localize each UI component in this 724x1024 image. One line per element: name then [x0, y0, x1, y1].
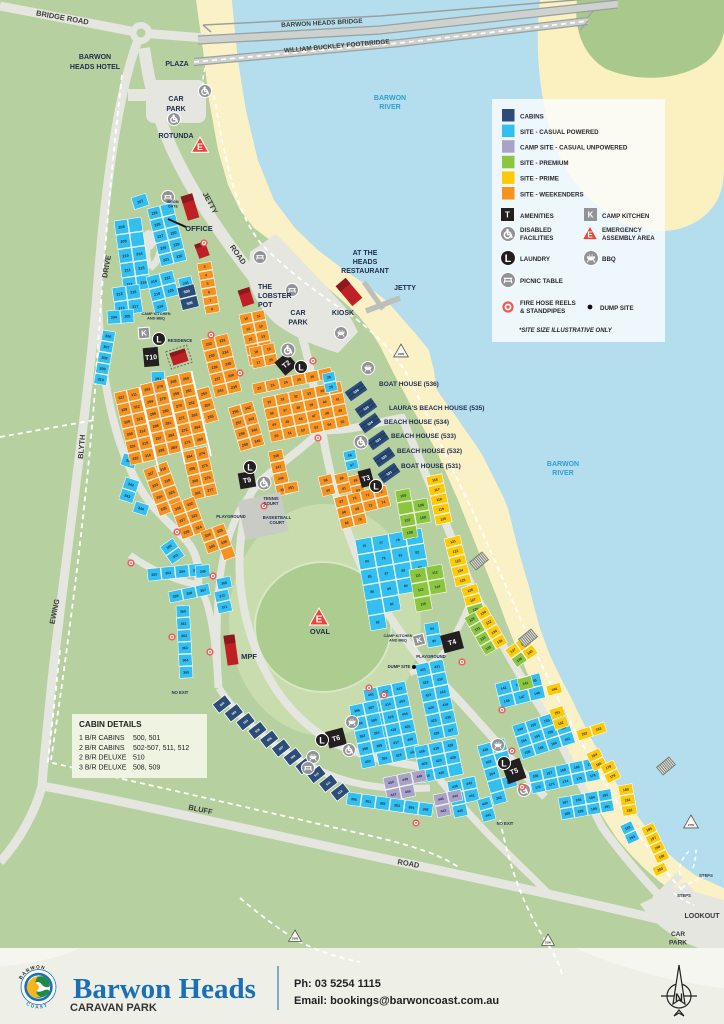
svg-text:L: L — [247, 463, 253, 473]
svg-text:ROTUNDA: ROTUNDA — [159, 133, 194, 140]
svg-text:208: 208 — [118, 225, 125, 230]
svg-text:DUMP SITE: DUMP SITE — [388, 664, 411, 669]
svg-text:AMENITIES: AMENITIES — [520, 213, 554, 220]
svg-text:81: 81 — [398, 553, 403, 558]
svg-text:E: E — [587, 231, 593, 240]
svg-text:95: 95 — [432, 639, 437, 644]
svg-text:354: 354 — [179, 569, 185, 574]
svg-text:MPF: MPF — [241, 652, 257, 661]
svg-text:BARWON: BARWON — [547, 461, 579, 468]
svg-text:363: 363 — [182, 646, 188, 650]
svg-text:215: 215 — [138, 266, 145, 271]
svg-text:PLAYGROUND: PLAYGROUND — [416, 654, 445, 659]
svg-text:BOAT HOUSE (531): BOAT HOUSE (531) — [401, 463, 461, 470]
svg-text:500, 501: 500, 501 — [133, 735, 160, 742]
svg-text:E: E — [316, 615, 323, 626]
svg-text:CAR: CAR — [671, 931, 685, 938]
svg-text:216: 216 — [140, 280, 147, 285]
svg-text:352: 352 — [151, 572, 157, 577]
svg-text:CAR: CAR — [290, 310, 305, 317]
svg-text:510: 510 — [133, 755, 145, 762]
svg-text:382: 382 — [379, 801, 385, 806]
svg-text:COURT: COURT — [264, 501, 279, 506]
svg-text:2 B/R CABINS: 2 B/R CABINS — [79, 745, 125, 752]
svg-text:212: 212 — [116, 292, 123, 297]
svg-text:OVAL: OVAL — [310, 627, 331, 636]
svg-text:362: 362 — [181, 634, 187, 638]
svg-text:JETTY: JETTY — [394, 285, 416, 292]
svg-text:L: L — [156, 335, 162, 345]
svg-text:PARK: PARK — [288, 320, 307, 327]
svg-text:AND BBQ: AND BBQ — [389, 639, 407, 643]
svg-text:89: 89 — [387, 587, 392, 592]
svg-text:Ph: 03 5254 1115: Ph: 03 5254 1115 — [294, 978, 381, 990]
svg-text:87: 87 — [384, 571, 389, 576]
svg-text:94: 94 — [430, 627, 435, 632]
svg-text:E: E — [197, 142, 203, 152]
svg-text:217: 217 — [132, 304, 139, 309]
svg-text:2 B/R DELUXE: 2 B/R DELUXE — [79, 755, 127, 762]
svg-text:AND BBQ: AND BBQ — [147, 317, 165, 321]
svg-text:508, 509: 508, 509 — [133, 764, 160, 771]
svg-text:POT: POT — [258, 302, 273, 309]
svg-text:BARWON: BARWON — [374, 95, 406, 102]
svg-text:BOOM: BOOM — [167, 200, 178, 204]
svg-text:L: L — [501, 759, 507, 769]
svg-text:STEPS: STEPS — [699, 873, 713, 878]
svg-text:KIOSK: KIOSK — [332, 310, 354, 317]
svg-text:SITE - CASUAL POWERED: SITE - CASUAL POWERED — [520, 129, 599, 136]
svg-text:L: L — [319, 736, 325, 746]
svg-text:82: 82 — [415, 550, 420, 555]
svg-text:PARK: PARK — [166, 106, 185, 113]
svg-text:FACILITIES: FACILITIES — [520, 235, 553, 242]
svg-text:3 B/R DELUXE: 3 B/R DELUXE — [79, 764, 127, 771]
svg-text:CABIN DETAILS: CABIN DETAILS — [79, 720, 142, 729]
svg-text:T10: T10 — [145, 354, 158, 362]
svg-text:L: L — [373, 482, 379, 492]
svg-text:PICNIC TABLE: PICNIC TABLE — [520, 278, 563, 285]
svg-text:L: L — [298, 363, 304, 373]
svg-text:PLAYGROUND: PLAYGROUND — [216, 514, 245, 519]
svg-text:STEPS: STEPS — [677, 893, 691, 898]
svg-text:211: 211 — [124, 268, 130, 273]
svg-text:BOAT HOUSE (536): BOAT HOUSE (536) — [379, 381, 439, 388]
svg-text:CARAVAN PARK: CARAVAN PARK — [70, 1002, 157, 1014]
svg-text:NO EXIT: NO EXIT — [172, 690, 189, 695]
svg-text:COURT: COURT — [270, 520, 285, 525]
svg-text:502-507, 511, 512: 502-507, 511, 512 — [133, 745, 189, 752]
svg-text:384: 384 — [408, 805, 414, 810]
svg-text:86: 86 — [370, 590, 375, 595]
svg-text:79: 79 — [396, 538, 401, 543]
svg-text:RIVER: RIVER — [379, 104, 400, 111]
svg-text:380: 380 — [351, 797, 357, 802]
svg-text:K: K — [588, 211, 594, 220]
svg-text:AT THE: AT THE — [353, 250, 378, 257]
svg-text:25W: 25W — [545, 941, 551, 945]
svg-text:BEACH HOUSE (532): BEACH HOUSE (532) — [397, 448, 462, 455]
svg-text:GATE: GATE — [168, 205, 178, 209]
svg-text:92: 92 — [376, 620, 381, 625]
svg-text:BBQ: BBQ — [602, 256, 616, 263]
svg-text:383: 383 — [394, 803, 400, 808]
svg-text:EMERGENCY: EMERGENCY — [602, 227, 643, 234]
svg-text:90: 90 — [404, 584, 409, 589]
svg-text:HEADS: HEADS — [353, 259, 378, 266]
svg-text:209: 209 — [120, 239, 127, 244]
svg-text:381: 381 — [365, 799, 371, 804]
svg-text:365: 365 — [183, 670, 189, 674]
svg-text:BEACH HOUSE (534): BEACH HOUSE (534) — [384, 419, 449, 426]
svg-text:85: 85 — [367, 574, 372, 579]
svg-text:& STANDPIPES: & STANDPIPES — [520, 308, 565, 315]
svg-text:20W: 20W — [398, 352, 404, 356]
svg-text:SITE - PRIME: SITE - PRIME — [520, 176, 559, 183]
svg-text:L: L — [505, 253, 512, 265]
svg-text:LAUNDRY: LAUNDRY — [520, 256, 551, 263]
svg-text:77: 77 — [379, 541, 384, 546]
svg-text:LAURA'S BEACH HOUSE (535): LAURA'S BEACH HOUSE (535) — [389, 405, 484, 412]
svg-text:360: 360 — [180, 609, 186, 613]
svg-text:364: 364 — [182, 658, 188, 662]
svg-text:RESIDENCE: RESIDENCE — [168, 338, 193, 343]
svg-text:OFFICE: OFFICE — [185, 224, 213, 233]
svg-text:NO EXIT: NO EXIT — [497, 821, 514, 826]
svg-text:Email: bookings@barwoncoast.co: Email: bookings@barwoncoast.com.au — [294, 995, 499, 1007]
svg-text:361: 361 — [181, 622, 187, 626]
svg-text:LOBSTER: LOBSTER — [258, 293, 291, 300]
svg-text:216: 216 — [130, 290, 137, 295]
svg-text:CAMP KITCHEN: CAMP KITCHEN — [141, 312, 170, 316]
svg-text:T9: T9 — [243, 477, 252, 485]
svg-text:CAMP KITCHEN: CAMP KITCHEN — [383, 634, 412, 638]
svg-text:T: T — [505, 211, 510, 220]
svg-text:Barwon Heads: Barwon Heads — [73, 973, 256, 1005]
svg-text:348: 348 — [200, 569, 206, 574]
svg-text:RESTAURANT: RESTAURANT — [341, 268, 389, 275]
svg-text:88: 88 — [401, 568, 406, 573]
svg-text:SITE - WEEKENDERS: SITE - WEEKENDERS — [520, 191, 584, 198]
svg-text:27W: 27W — [688, 823, 694, 827]
svg-text:*SITE SIZE ILLUSTRATIVE ONLY: *SITE SIZE ILLUSTRATIVE ONLY — [519, 328, 613, 334]
svg-text:91: 91 — [390, 602, 395, 607]
svg-text:84: 84 — [365, 559, 370, 564]
svg-text:BARWON: BARWON — [79, 54, 111, 61]
svg-text:353: 353 — [165, 571, 171, 576]
svg-text:N: N — [675, 992, 683, 1004]
svg-text:76: 76 — [362, 544, 367, 549]
svg-text:CAMP KITCHEN: CAMP KITCHEN — [602, 213, 650, 220]
svg-text:FIRE HOSE REELS: FIRE HOSE REELS — [520, 300, 576, 307]
svg-text:25W: 25W — [292, 937, 298, 941]
svg-text:1 B/R CABINS: 1 B/R CABINS — [79, 735, 125, 742]
svg-text:RIVER: RIVER — [552, 470, 573, 477]
svg-text:CAR: CAR — [168, 96, 183, 103]
svg-text:BEACH HOUSE (533): BEACH HOUSE (533) — [391, 433, 456, 440]
svg-text:385: 385 — [422, 807, 428, 812]
svg-text:ASSEMBLY AREA: ASSEMBLY AREA — [602, 235, 655, 242]
svg-text:210: 210 — [122, 254, 129, 259]
svg-text:78: 78 — [382, 556, 387, 561]
svg-text:DISABLED: DISABLED — [520, 227, 552, 234]
svg-text:DUMP SITE: DUMP SITE — [600, 305, 634, 312]
svg-text:CAMP SITE - CASUAL UNPOWERED: CAMP SITE - CASUAL UNPOWERED — [520, 145, 628, 152]
svg-text:HEADS HOTEL: HEADS HOTEL — [70, 64, 121, 71]
svg-text:SITE - PREMIUM: SITE - PREMIUM — [520, 160, 568, 167]
svg-text:LOOKOUT: LOOKOUT — [685, 913, 721, 920]
svg-text:305: 305 — [124, 314, 130, 318]
svg-text:CABINS: CABINS — [520, 113, 544, 120]
svg-text:PLAZA: PLAZA — [165, 61, 188, 68]
svg-text:PARK: PARK — [669, 940, 687, 947]
svg-text:THE: THE — [258, 284, 272, 291]
